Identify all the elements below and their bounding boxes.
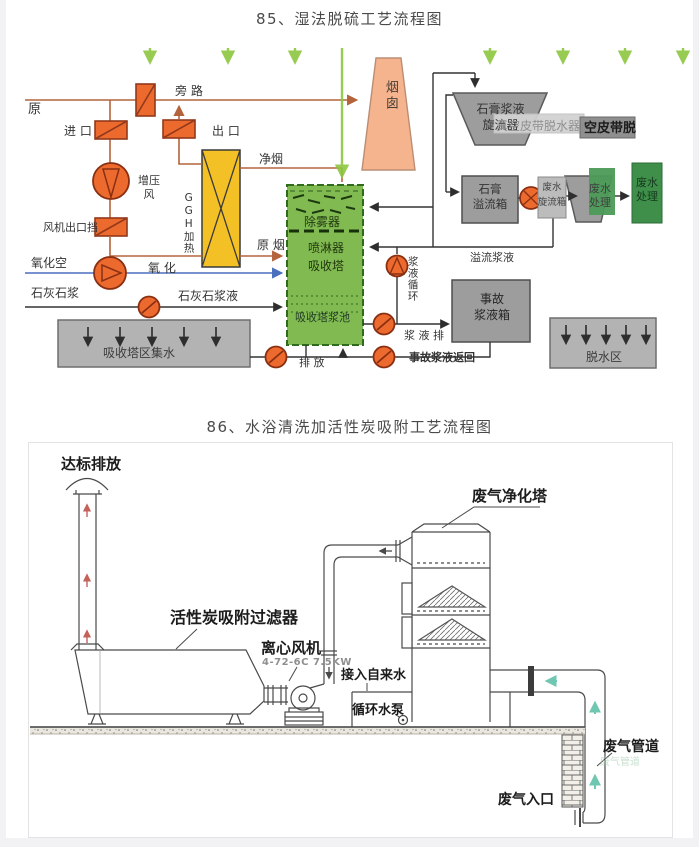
fan-outlet-damper xyxy=(95,218,127,236)
label-fan-model: 4-72-6C 7.5KW xyxy=(262,656,352,669)
d2-duct-flange xyxy=(528,666,534,696)
outlet-damper xyxy=(163,120,195,138)
d1-ggh-heater xyxy=(202,150,240,267)
label-absorber-pool: 吸收塔浆池 xyxy=(295,311,350,325)
label-gypsum-overflow: 石膏 溢流箱 xyxy=(465,182,515,212)
label-raw-gas: 原 烟 xyxy=(257,238,285,254)
label-ggh-heater: GGH加热 xyxy=(181,192,195,254)
label-emergency-return: 事故浆液返回 xyxy=(409,351,475,365)
label-gas-inlet: 废气入口 xyxy=(498,791,554,809)
label-tap-water: 接入自来水 xyxy=(341,668,406,685)
label-belt-overlay: 空皮带脱 xyxy=(584,121,636,138)
label-absorber-tower: 吸收塔 xyxy=(308,259,344,275)
discharge-pump xyxy=(266,347,287,368)
label-slurry-circulation: 浆液循环 xyxy=(405,256,419,302)
label-limestone-slurry: 石灰石浆液 xyxy=(178,289,238,305)
label-wastewater-treatment-a: 废水 处理 xyxy=(584,182,616,211)
d2-linework xyxy=(66,479,612,828)
label-demister: 除雾器 xyxy=(304,215,340,231)
booster-fan-pump xyxy=(93,163,129,199)
label-purification-tower: 废气净化塔 xyxy=(472,487,547,507)
d2-brick-pier xyxy=(562,733,583,807)
diagram1-title: 85、湿法脱硫工艺流程图 xyxy=(0,8,699,29)
d1-chimney xyxy=(362,58,415,170)
d2-ground xyxy=(30,727,585,734)
d1-watermark-arrows xyxy=(150,48,683,62)
label-discharge: 排 放 xyxy=(299,356,325,370)
diagram2-title: 86、水浴清洗加活性炭吸附工艺流程图 xyxy=(0,416,699,437)
label-bypass: 旁 路 xyxy=(175,84,203,100)
label-outlet: 出 口 xyxy=(212,124,240,140)
return-pump xyxy=(374,347,395,368)
label-wastewater-treatment-b: 废水 处理 xyxy=(632,176,662,205)
label-gas-pipe: 废气管道 xyxy=(603,738,659,756)
oxidation-fan-pump xyxy=(94,257,126,289)
label-overflow-slurry: 溢流浆液 xyxy=(470,251,514,265)
label-raw-gas-short: 原 xyxy=(28,102,41,119)
label-clean-gas: 净烟 xyxy=(259,152,283,168)
limestone-pump xyxy=(139,297,160,318)
label-slurry-drain: 浆 液 排 xyxy=(404,329,444,343)
label-limestone: 石灰石浆 xyxy=(31,286,79,302)
label-compliant-discharge: 达标排放 xyxy=(61,455,121,475)
label-circulating-pump: 循环水泵 xyxy=(352,703,404,720)
d2-flow-arrows xyxy=(87,505,595,789)
label-chimney: 烟囱 xyxy=(381,80,398,112)
label-vacuum-belt: 真空皮带脱水器 xyxy=(496,119,580,135)
drain-pump xyxy=(374,314,395,335)
label-carbon-filter: 活性炭吸附过滤器 xyxy=(170,608,298,629)
inlet-damper xyxy=(95,121,127,139)
label-watermark: 废气管道 xyxy=(600,756,640,769)
label-inlet: 进 口 xyxy=(64,124,92,140)
label-fan-outlet-damper: 风机出口挡 xyxy=(43,221,98,235)
label-wastewater-cyclone: 废水 旋流箱 xyxy=(537,181,567,210)
label-booster-fan: 增压 风 xyxy=(131,174,167,203)
bypass-damper xyxy=(136,84,155,116)
label-dewatering-zone: 脱水区 xyxy=(586,350,622,366)
label-tower-area-water: 吸收塔区集水 xyxy=(103,346,175,362)
label-oxidation: 氧 化 xyxy=(148,261,176,277)
page: 85、湿法脱硫工艺流程图 86、水浴清洗加活性炭吸附工艺流程图 原 进 口 旁 … xyxy=(0,0,699,847)
label-emergency-tank: 事故 浆液箱 xyxy=(461,292,523,323)
label-oxidation-air: 氧化空 xyxy=(31,256,67,272)
label-sprayer: 喷淋器 xyxy=(308,241,344,257)
